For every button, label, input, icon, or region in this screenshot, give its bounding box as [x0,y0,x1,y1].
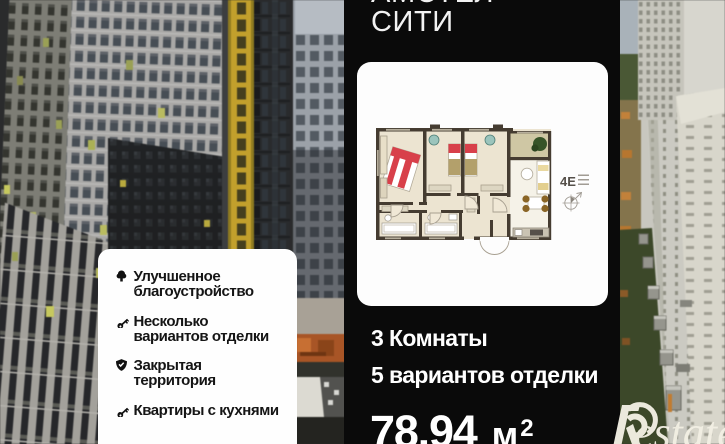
svg-text:4E: 4E [560,174,576,189]
svg-text:estate: estate [634,408,725,444]
